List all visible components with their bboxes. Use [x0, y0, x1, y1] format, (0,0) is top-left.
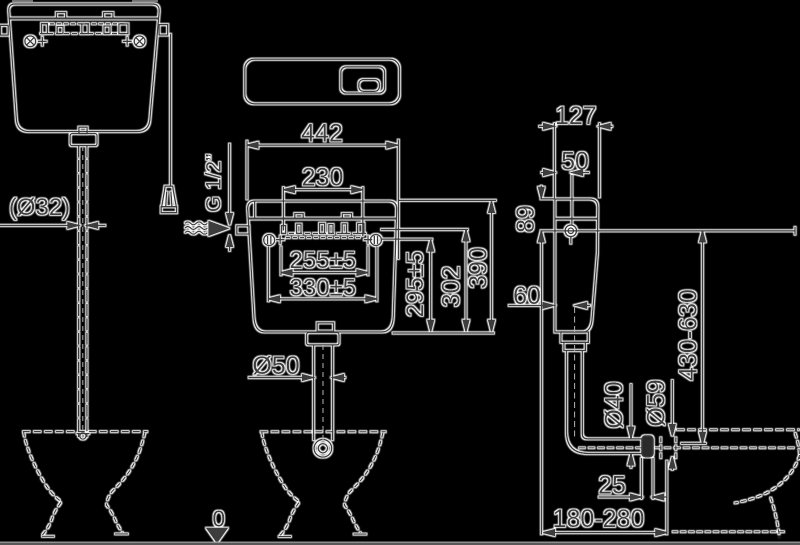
- svg-text:255±5: 255±5: [290, 247, 357, 274]
- svg-text:25: 25: [598, 472, 626, 500]
- svg-text:127: 127: [555, 102, 597, 130]
- svg-text:230: 230: [302, 164, 344, 192]
- svg-text:Ø59: Ø59: [643, 379, 671, 426]
- svg-text:430-630: 430-630: [675, 289, 703, 381]
- svg-text:Ø50: Ø50: [252, 352, 299, 380]
- svg-text:89: 89: [512, 205, 540, 233]
- svg-text:G 1/2”: G 1/2”: [203, 154, 226, 212]
- svg-text:Ø40: Ø40: [601, 381, 629, 428]
- svg-text:(Ø32): (Ø32): [9, 194, 70, 221]
- svg-text:330±5: 330±5: [290, 275, 357, 302]
- svg-text:390: 390: [465, 247, 493, 289]
- svg-text:180-280: 180-280: [553, 505, 645, 533]
- svg-text:302: 302: [438, 266, 466, 308]
- svg-text:295±5: 295±5: [402, 251, 429, 318]
- svg-text:442: 442: [301, 120, 343, 148]
